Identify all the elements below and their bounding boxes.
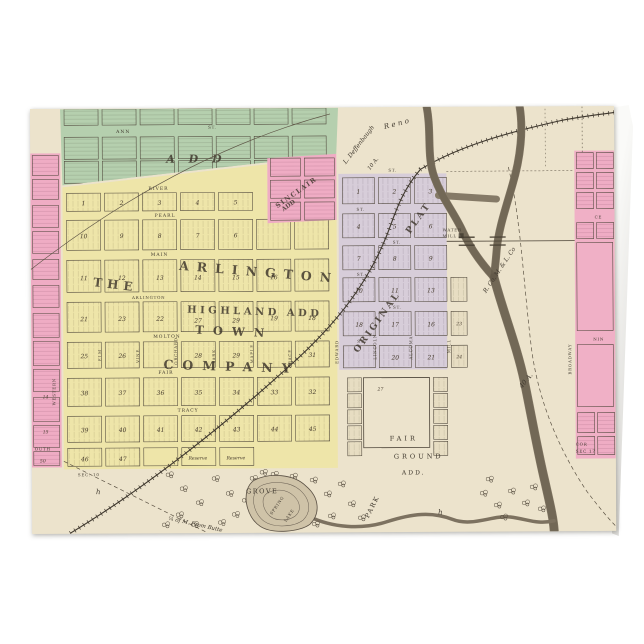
street-label-st: ST. [388,168,397,173]
script-mark: h [438,508,443,516]
block [254,108,288,124]
block-number: 45 [308,426,317,433]
block-number: 20 [390,355,399,362]
block-number: 15 [43,429,49,435]
block [34,451,60,465]
region-left-addition: 14 15 50 OUTH WESTERN [30,153,62,467]
block-number: 5 [234,199,238,206]
water-mill-label: WATER [443,227,462,232]
block-number: 18 [355,322,363,329]
block-number: 13 [427,287,435,294]
block-number: 2 [392,189,397,196]
street-label-st: ST. [393,240,402,245]
block-number: 1 [357,189,361,196]
block-number: 8 [393,256,397,263]
street-label-south: OUTH [35,446,51,451]
block-number: 21 [79,316,88,323]
street-label-western: WESTERN [51,378,56,406]
block-number: 21 [426,354,435,361]
block-number: 25 [79,353,88,360]
block [64,109,98,125]
street-label-lincoln: LINCOLN [372,334,377,360]
script-mark: h [96,488,101,496]
block-number: 9 [429,255,433,262]
block-number: 29 [231,317,240,324]
block [348,426,362,440]
block [102,137,136,159]
add-label-ground: GROUND [394,452,444,460]
card-front: ANN ST. A D D 14 15 50 [30,106,616,534]
block-number: 26 [117,353,126,360]
reserve-label: Reserve [225,455,245,461]
block-number: 1 [82,200,86,207]
block-number: 7 [196,233,200,240]
block [295,219,329,249]
block-number: 33 [271,389,279,396]
block [348,410,362,424]
block-number: 7 [357,256,361,263]
block-number: 37 [119,390,127,397]
block [577,242,613,330]
street-label-pearl: PEARL [155,213,176,219]
block [598,412,615,432]
street-label-st: ST. [357,272,366,277]
region-sinclair-add: SINCLAIR ADD [267,154,336,223]
street-label-broadway: BROADWAY [567,344,572,375]
block [32,179,58,199]
block [33,313,59,337]
block [578,413,595,433]
block [270,158,300,176]
grove-label: GROVE [246,487,278,495]
block [434,409,448,423]
street-label-ce: CE [595,215,603,220]
block-number: 36 [157,390,165,397]
block-number: 35 [195,390,203,397]
block-number: 50 [40,458,46,464]
block-number: 43 [232,426,241,433]
block-number: 41 [156,427,165,434]
street-label-edward: EDWARD [334,340,339,364]
street-label-st: ST. [208,125,217,130]
block-number: 38 [81,390,89,397]
block-number: 47 [118,456,127,463]
street-label-vine: VINE [135,349,140,364]
block-number: 4 [195,200,200,207]
block [596,192,613,208]
street-label-arlington: ARLINGTON [131,295,166,300]
sec10-label: SEC. 10 [78,472,100,477]
block [433,377,447,391]
block [140,109,174,125]
block [292,108,326,124]
block [64,137,98,159]
block-number: 17 [391,322,399,329]
block [576,173,593,189]
block-number: 6 [234,232,238,239]
block-number: 8 [158,233,162,240]
block [64,161,98,183]
street-label-ann: ANN [115,129,130,135]
block-number: 22 [155,316,164,323]
block [33,231,59,253]
block-number: 39 [81,427,89,434]
block-number: 3 [158,200,162,207]
add-label-add: ADD. [401,469,426,476]
street-label-nin: NIN [593,336,604,341]
block [254,136,288,158]
block-number: 42 [194,427,203,434]
block-number: 2 [119,200,124,207]
reserve-label: Reserve [187,456,207,462]
block-number: 14 [43,394,49,400]
block [597,222,614,238]
block-number: 13 [156,275,164,282]
block-number: 6 [429,223,433,230]
block [576,153,593,169]
block [434,425,448,439]
block-number: 27 [377,387,384,393]
block [577,223,594,239]
street-label-tracy: TRACY [178,408,199,414]
block-number: 10 [80,233,88,240]
block [576,193,593,209]
block [577,344,613,406]
block-number: 5 [393,224,397,231]
block-number: 3 [429,188,433,195]
block [347,378,361,392]
block [292,136,326,158]
block [348,442,362,456]
block [178,109,212,125]
product-mockup-page: ANN ST. A D D 14 15 50 [0,0,644,644]
block [433,393,447,407]
block [598,436,615,454]
block [33,341,59,365]
street-label-main: MAIN [151,252,169,258]
cor-label: COR [576,442,588,447]
block [304,202,334,220]
sec17-label: SEC 17 [576,449,596,454]
block [102,109,136,125]
block [596,172,613,188]
street-label-mill: MILL [446,339,451,353]
block-number: 44 [270,426,279,433]
block [33,205,59,227]
block [257,219,291,249]
block [596,152,613,168]
street-label-elm: ELM [97,349,102,361]
block [33,259,59,279]
block [451,277,467,301]
block-number: 31 [308,352,316,359]
plat-map: ANN ST. A D D 14 15 50 [30,106,616,534]
street-label-river: RIVER [148,186,168,192]
block-number: 16 [427,321,435,328]
block-number: 4 [356,224,361,231]
block-number: 11 [80,275,88,282]
block [33,285,59,307]
street-label-st: ST. [357,207,366,212]
block-number: 23 [117,316,126,323]
add-label-fair: FAIR [390,434,418,442]
block [32,155,58,175]
block [34,425,60,447]
block-number: 14 [194,275,202,282]
block-number: 9 [120,233,124,240]
street-label-alcoma: ALCOMA [408,336,413,361]
block-number: 46 [80,456,89,463]
water-mill-label2: MILL [443,233,457,238]
block-number: 34 [233,389,241,396]
block [347,394,361,408]
block-number: 24 [455,354,462,360]
block [304,158,334,176]
block [216,108,250,124]
mill-symbol [459,233,464,238]
block-number: 40 [118,427,127,434]
block-number: 32 [309,389,317,396]
block-number: 23 [455,321,462,327]
